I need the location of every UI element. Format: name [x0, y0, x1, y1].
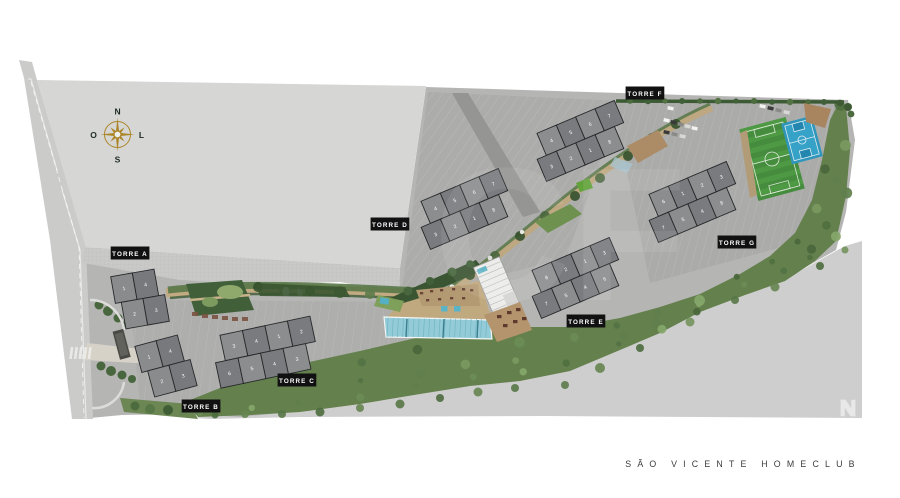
svg-text:N: N [114, 107, 120, 117]
svg-text:S: S [115, 155, 121, 165]
svg-text:L: L [139, 130, 144, 140]
svg-text:TORRE G: TORRE G [719, 240, 755, 247]
svg-text:TORRE C: TORRE C [279, 378, 315, 385]
svg-text:TORRE B: TORRE B [183, 404, 219, 411]
svg-text:O: O [90, 130, 97, 140]
svg-text:CF: CF [433, 129, 686, 341]
svg-text:SÃO VICENTE HOMECLUB: SÃO VICENTE HOMECLUB [625, 459, 860, 469]
svg-text:TORRE D: TORRE D [372, 222, 408, 229]
svg-text:TORRE A: TORRE A [112, 251, 148, 258]
svg-text:TORRE F: TORRE F [627, 91, 662, 98]
